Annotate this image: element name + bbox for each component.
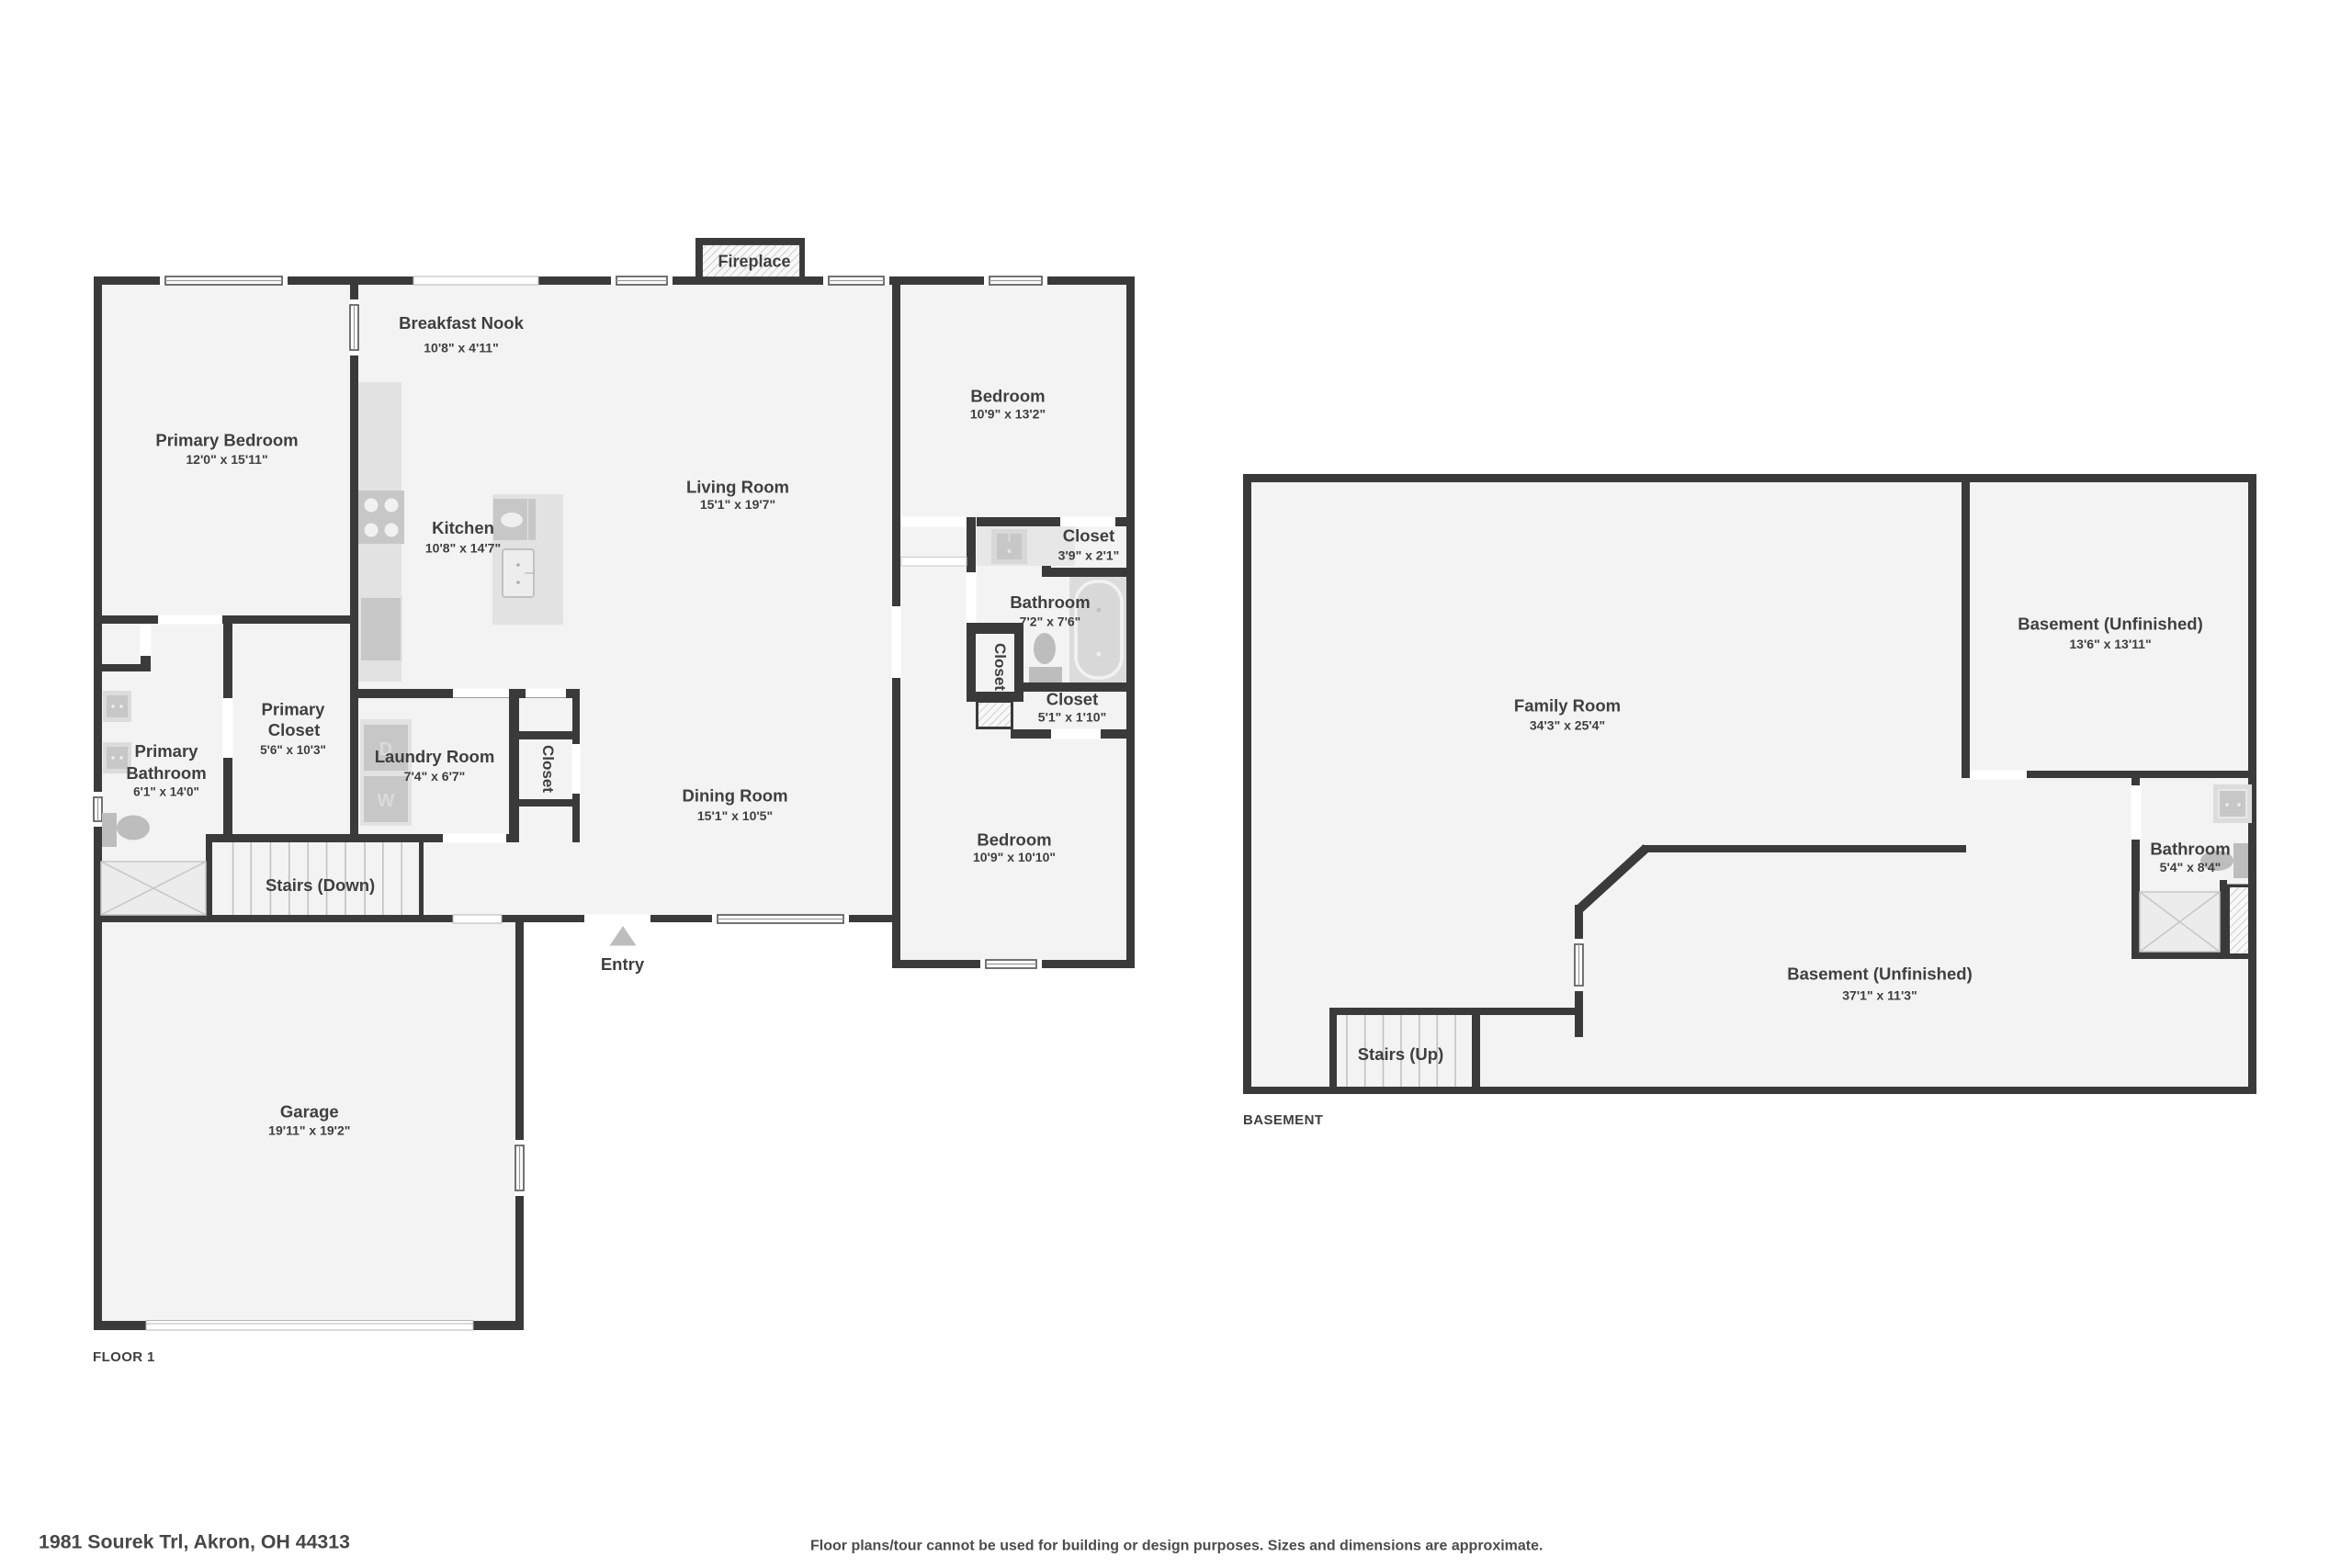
svg-text:15'1" x 10'5": 15'1" x 10'5" xyxy=(697,808,773,823)
svg-text:7'2" x 7'6": 7'2" x 7'6" xyxy=(1020,615,1081,629)
svg-text:Bathroom: Bathroom xyxy=(126,763,206,783)
svg-text:13'6" x 13'11": 13'6" x 13'11" xyxy=(2069,637,2151,651)
svg-text:Stairs (Down): Stairs (Down) xyxy=(266,875,375,895)
svg-text:10'8" x 14'7": 10'8" x 14'7" xyxy=(425,540,501,555)
svg-text:6'1" x 14'0": 6'1" x 14'0" xyxy=(133,785,199,799)
svg-text:Floor plans/tour cannot be use: Floor plans/tour cannot be used for buil… xyxy=(810,1539,1543,1554)
svg-text:W: W xyxy=(378,791,395,811)
svg-text:Bathroom: Bathroom xyxy=(1010,592,1090,612)
svg-text:Kitchen: Kitchen xyxy=(432,518,494,537)
svg-text:12'0" x 15'11": 12'0" x 15'11" xyxy=(186,452,267,467)
svg-text:10'9" x 10'10": 10'9" x 10'10" xyxy=(973,850,1056,864)
svg-text:Bathroom: Bathroom xyxy=(2150,840,2230,859)
svg-text:5'4" x 8'4": 5'4" x 8'4" xyxy=(2160,860,2222,874)
svg-text:Dining Room: Dining Room xyxy=(682,786,787,806)
svg-text:FLOOR 1: FLOOR 1 xyxy=(93,1349,155,1365)
svg-text:15'1" x 19'7": 15'1" x 19'7" xyxy=(700,497,775,512)
svg-text:5'6" x 10'3": 5'6" x 10'3" xyxy=(260,743,326,757)
svg-text:Closet: Closet xyxy=(1063,526,1115,546)
svg-text:Primary Bedroom: Primary Bedroom xyxy=(155,430,298,449)
svg-text:Living Room: Living Room xyxy=(686,478,789,497)
svg-text:37'1" x 11'3": 37'1" x 11'3" xyxy=(1842,987,1917,1002)
svg-text:34'3" x 25'4": 34'3" x 25'4" xyxy=(1530,717,1605,732)
svg-text:7'4" x 6'7": 7'4" x 6'7" xyxy=(404,769,466,784)
svg-text:Breakfast Nook: Breakfast Nook xyxy=(399,313,524,333)
svg-text:Garage: Garage xyxy=(280,1101,339,1121)
svg-text:Bedroom: Bedroom xyxy=(977,829,1051,849)
svg-text:1981 Sourek Trl, Akron, OH 443: 1981 Sourek Trl, Akron, OH 44313 xyxy=(39,1531,350,1553)
svg-text:10'8" x 4'11": 10'8" x 4'11" xyxy=(424,340,498,355)
svg-text:Basement (Unfinished): Basement (Unfinished) xyxy=(1787,964,1972,984)
svg-text:Primary: Primary xyxy=(135,741,199,761)
svg-text:Basement (Unfinished): Basement (Unfinished) xyxy=(2018,615,2202,634)
svg-text:Closet: Closet xyxy=(991,643,1009,691)
svg-text:Laundry Room: Laundry Room xyxy=(375,747,495,766)
svg-text:Fireplace: Fireplace xyxy=(718,253,790,271)
svg-text:19'11" x 19'2": 19'11" x 19'2" xyxy=(268,1123,350,1138)
svg-text:Stairs (Up): Stairs (Up) xyxy=(1358,1044,1444,1064)
svg-text:Family Room: Family Room xyxy=(1514,696,1621,716)
svg-text:Closet: Closet xyxy=(268,720,321,739)
svg-text:5'1" x 1'10": 5'1" x 1'10" xyxy=(1038,709,1106,724)
svg-text:BASEMENT: BASEMENT xyxy=(1243,1112,1323,1128)
svg-text:Closet: Closet xyxy=(1046,690,1099,709)
svg-text:10'9" x 13'2": 10'9" x 13'2" xyxy=(970,407,1046,422)
svg-text:Primary: Primary xyxy=(262,700,326,719)
svg-text:Entry: Entry xyxy=(601,954,645,974)
svg-text:3'9" x 2'1": 3'9" x 2'1" xyxy=(1058,547,1120,562)
svg-text:Closet: Closet xyxy=(539,745,557,793)
svg-text:Bedroom: Bedroom xyxy=(970,386,1045,405)
